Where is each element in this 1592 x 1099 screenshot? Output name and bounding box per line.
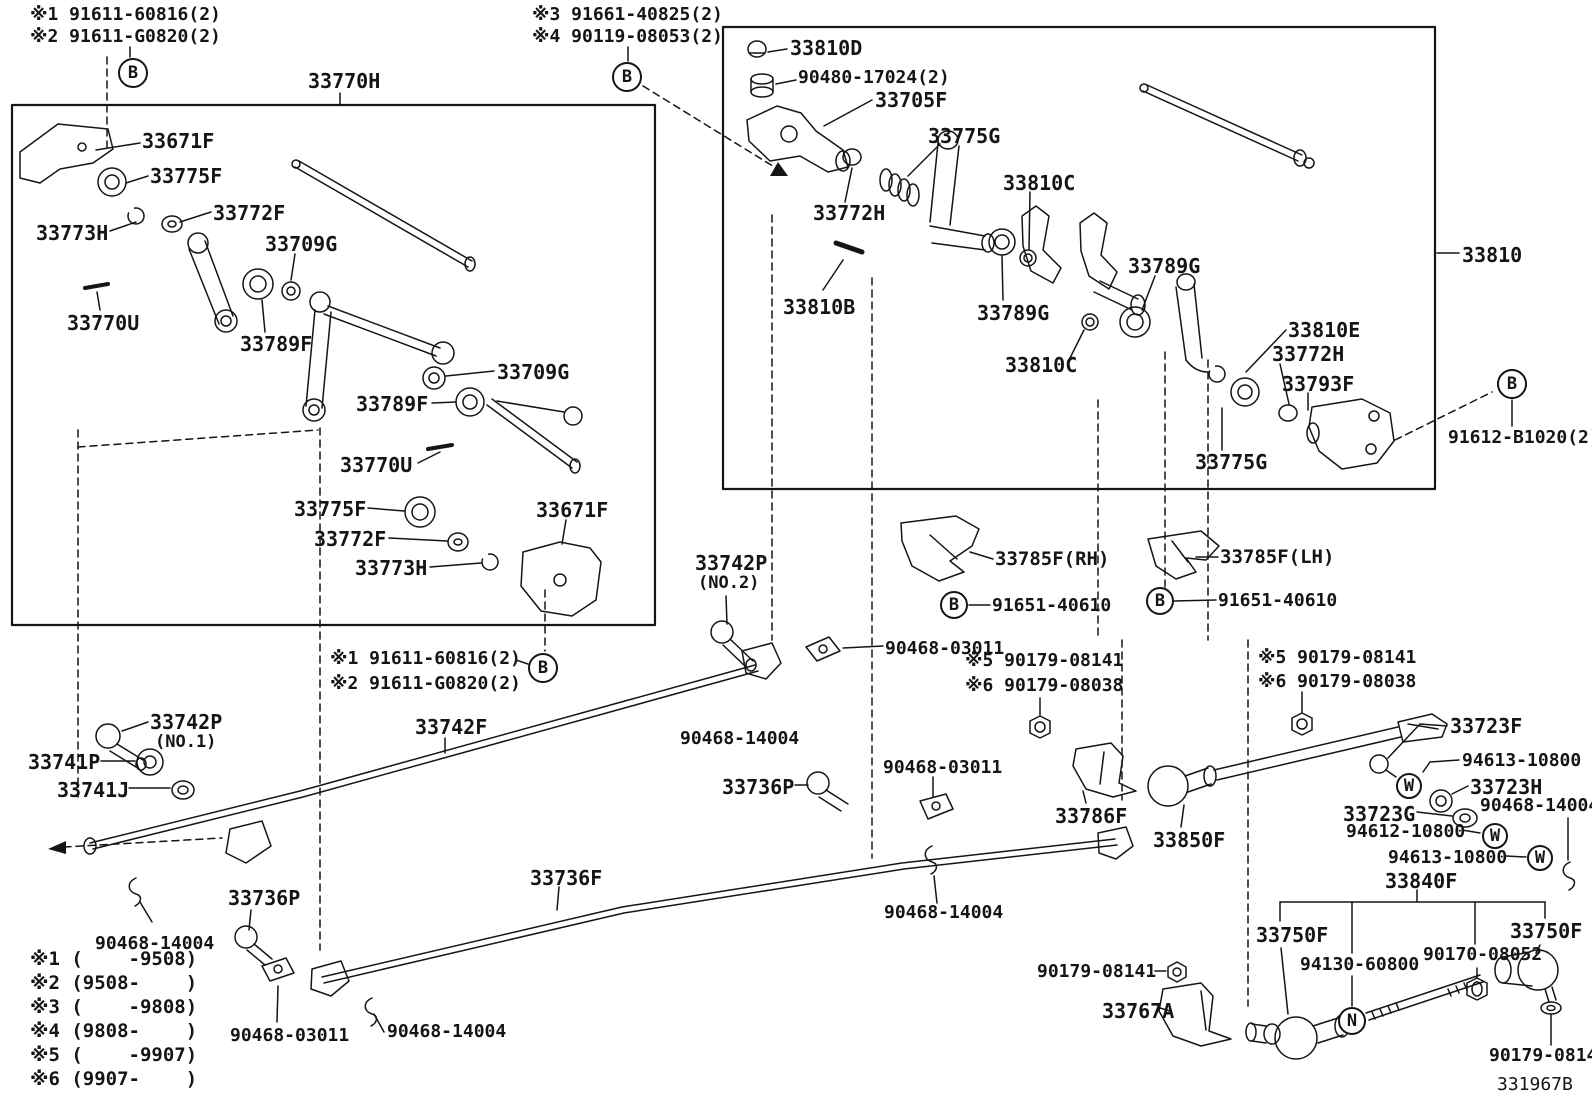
note-ref1-top: ※1 91611-60816(2) xyxy=(30,6,221,25)
legend-row-1: ※1 ( -9508) xyxy=(30,950,197,970)
label-33770U-1: 33770U xyxy=(67,313,139,334)
parts-diagram-canvas: ※1 91611-60816(2)※2 91611-G0820(2)※3 916… xyxy=(0,0,1592,1099)
label-33775G-2: 33775G xyxy=(1195,452,1267,473)
label-90480-17024: 90480-17024(2) xyxy=(798,69,950,88)
label-33773H-1: 33773H xyxy=(36,223,108,244)
label-33810C-1: 33810C xyxy=(1003,173,1075,194)
callout-circle-B-4: B xyxy=(940,591,968,619)
label-90179-08141-1: 90179-08141 xyxy=(1037,963,1156,982)
note-ref5-1: ※5 90179-08141 xyxy=(965,652,1123,671)
label-33767A: 33767A xyxy=(1102,1001,1174,1022)
note-ref1-mid: ※1 91611-60816(2) xyxy=(330,650,521,669)
label-33850F: 33850F xyxy=(1153,830,1225,851)
label-33775G-1: 33775G xyxy=(928,126,1000,147)
label-33736P-1: 33736P xyxy=(722,777,794,798)
label-33709G-2: 33709G xyxy=(497,362,569,383)
label-33789G-2: 33789G xyxy=(1128,256,1200,277)
legend-row-2: ※2 (9508- ) xyxy=(30,974,197,994)
label-94613-10800-1: 94613-10800 xyxy=(1462,752,1581,771)
label-94613-10800-2: 94613-10800 xyxy=(1388,849,1507,868)
label-94612-10800: 94612-10800 xyxy=(1346,823,1465,842)
label-33770U-2: 33770U xyxy=(340,455,412,476)
label-33742F: 33742F xyxy=(415,717,487,738)
label-33775F-2: 33775F xyxy=(294,499,366,520)
note-ref6-1: ※6 90179-08038 xyxy=(965,677,1123,696)
label-33810E: 33810E xyxy=(1288,320,1360,341)
legend-row-5: ※5 ( -9907) xyxy=(30,1046,197,1066)
note-ref6-2: ※6 90179-08038 xyxy=(1258,673,1416,692)
label-33772F-2: 33772F xyxy=(314,529,386,550)
label-33772F-1: 33772F xyxy=(213,203,285,224)
callout-circle-B-5: B xyxy=(1146,587,1174,615)
label-90170-08052: 90170-08052 xyxy=(1423,946,1542,965)
label-33671F-1: 33671F xyxy=(142,131,214,152)
note-ref2-top: ※2 91611-G0820(2) xyxy=(30,28,221,47)
callout-circle-N-10: N xyxy=(1338,1007,1366,1035)
label-33785F-RH: 33785F(RH) xyxy=(995,550,1109,570)
label-33736P-2: 33736P xyxy=(228,888,300,909)
label-33741P: 33741P xyxy=(28,752,100,773)
label-90468-03011-2: 90468-03011 xyxy=(883,759,1002,778)
label-33785F-LH: 33785F(LH) xyxy=(1220,548,1334,568)
label-33750F-2: 33750F xyxy=(1510,921,1582,942)
callout-circle-B-3: B xyxy=(528,653,558,683)
label-33770H: 33770H xyxy=(308,71,380,92)
label-33671F-2: 33671F xyxy=(536,500,608,521)
label-33789F-2: 33789F xyxy=(356,394,428,415)
label-33810D: 33810D xyxy=(790,38,862,59)
label-33742P-no1: 33742P xyxy=(150,712,222,733)
note-ref4-top: ※4 90119-08053(2) xyxy=(532,28,723,47)
label-33786F: 33786F xyxy=(1055,806,1127,827)
label-90468-03011-3: 90468-03011 xyxy=(230,1027,349,1046)
label-94130-60800: 94130-60800 xyxy=(1300,956,1419,975)
label-91651-40610-2: 91651-40610 xyxy=(1218,592,1337,611)
label-33810B: 33810B xyxy=(783,297,855,318)
label-33772H-2: 33772H xyxy=(1272,344,1344,365)
label-33742P-no1-sub: (NO.1) xyxy=(155,734,216,752)
label-33772H-1: 33772H xyxy=(813,203,885,224)
labels-layer: ※1 91611-60816(2)※2 91611-G0820(2)※3 916… xyxy=(0,0,1592,1099)
note-ref2-mid: ※2 91611-G0820(2) xyxy=(330,675,521,694)
legend-row-3: ※3 ( -9808) xyxy=(30,998,197,1018)
label-33741J: 33741J xyxy=(57,780,129,801)
callout-circle-W-9: W xyxy=(1527,845,1553,871)
callout-circle-W-8: W xyxy=(1482,823,1508,849)
callout-circle-B-6: B xyxy=(1497,369,1527,399)
legend-row-6: ※6 (9907- ) xyxy=(30,1070,197,1090)
callout-circle-B-2: B xyxy=(612,62,642,92)
label-33810: 33810 xyxy=(1462,245,1522,266)
label-91651-40610-1: 91651-40610 xyxy=(992,597,1111,616)
diagram-code: 331967B xyxy=(1497,1076,1573,1095)
label-33840F: 33840F xyxy=(1385,871,1457,892)
label-33789G-1: 33789G xyxy=(977,303,1049,324)
label-33705F: 33705F xyxy=(875,90,947,111)
label-33736F: 33736F xyxy=(530,868,602,889)
label-33742P-no2-sub: (NO.2) xyxy=(698,575,759,593)
label-33742P-no2: 33742P xyxy=(695,553,767,574)
callout-circle-W-7: W xyxy=(1396,773,1422,799)
label-33709G-1: 33709G xyxy=(265,234,337,255)
label-90468-14004-2: 90468-14004 xyxy=(1480,797,1592,816)
label-33810C-2: 33810C xyxy=(1005,355,1077,376)
label-90468-14004-4: 90468-14004 xyxy=(387,1023,506,1042)
label-90468-14004-5: 90468-14004 xyxy=(884,904,1003,923)
note-ref3-top: ※3 91661-40825(2) xyxy=(532,6,723,25)
label-33723F: 33723F xyxy=(1450,716,1522,737)
callout-circle-B-1: B xyxy=(118,58,148,88)
label-33773H-2: 33773H xyxy=(355,558,427,579)
label-33789F-1: 33789F xyxy=(240,334,312,355)
label-33775F-1: 33775F xyxy=(150,166,222,187)
note-ref5-2: ※5 90179-08141 xyxy=(1258,649,1416,668)
label-33793F: 33793F xyxy=(1282,374,1354,395)
label-90179-08141-2: 90179-08141 xyxy=(1489,1047,1592,1066)
label-90468-14004-1: 90468-14004 xyxy=(680,730,799,749)
label-33750F-1: 33750F xyxy=(1256,925,1328,946)
label-91612-B1020: 91612-B1020(2) xyxy=(1448,429,1592,448)
legend-row-4: ※4 (9808- ) xyxy=(30,1022,197,1042)
